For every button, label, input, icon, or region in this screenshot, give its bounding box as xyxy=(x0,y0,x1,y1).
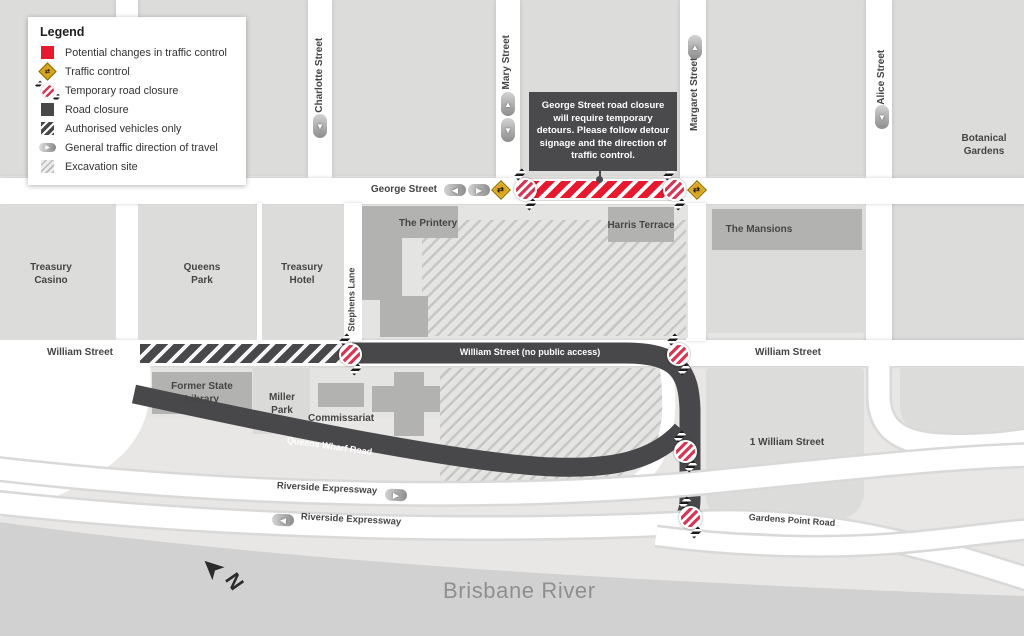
legend-item-label: Potential changes in traffic control xyxy=(65,47,227,59)
william-street-label-west: William Street xyxy=(40,347,120,360)
treasury-hotel-label: Treasury Hotel xyxy=(272,262,332,287)
arrow-down-icon: ▼ xyxy=(504,126,512,135)
legend-item-traffic-control: ⇄ Traffic control xyxy=(38,62,236,81)
charlotte-direction-pill: ▼ xyxy=(313,114,327,138)
authorised-vehicles-icon xyxy=(38,122,57,135)
harris-terrace-label: Harris Terrace xyxy=(605,220,677,233)
arrow-up-icon: ▲ xyxy=(691,43,699,52)
charlotte-street-label: Charlotte Street xyxy=(314,35,327,115)
legend-item-traffic-direction: ▶ General traffic direction of travel xyxy=(38,138,236,157)
excavation-site-icon xyxy=(38,160,57,173)
legend-item-label: Temporary road closure xyxy=(65,85,178,97)
mary-direction-pill-down: ▼ xyxy=(501,118,515,142)
margaret-street-label: Margaret Street xyxy=(689,54,702,134)
william-street-closed-label: William Street (no public access) xyxy=(430,347,630,358)
arrow-up-icon: ▲ xyxy=(504,100,512,109)
riverside-direction-pill-west: ◀ xyxy=(272,513,295,526)
road-closure-sign-george-west xyxy=(514,178,537,201)
mary-street-label: Mary Street xyxy=(501,22,514,102)
arrow-left-icon: ◀ xyxy=(280,515,287,524)
traffic-controller-glyph: ⇄ xyxy=(497,185,504,194)
road-closure-sign-margaret-south xyxy=(674,440,697,463)
traffic-controller-glyph: ⇄ xyxy=(693,185,700,194)
one-william-street-label: 1 William Street xyxy=(737,437,837,450)
george-street-closure-callout: George Street road closure will require … xyxy=(529,92,677,171)
george-direction-pill-left: ◀ xyxy=(444,184,466,196)
queens-park-label: Queens Park xyxy=(174,262,230,287)
alice-direction-pill: ▼ xyxy=(875,105,889,129)
legend-item-temporary-closure: Temporary road closure xyxy=(38,81,236,100)
botanical-gardens-label: Botanical Gardens xyxy=(950,133,1018,158)
former-state-library-label: Former State Library xyxy=(160,381,244,406)
miller-park-label: Miller Park xyxy=(262,392,302,417)
traffic-control-icon: ⇄ xyxy=(38,65,57,78)
road-closure-icon xyxy=(38,103,57,116)
traffic-control-map: ⇄ ⇄ ▼ ▲ ▼ ▲ ▼ ◀ ▶ ▶ ◀ George Street Char… xyxy=(0,0,1024,636)
brisbane-river-label: Brisbane River xyxy=(443,578,596,604)
legend-item-authorised-vehicles: Authorised vehicles only xyxy=(38,119,236,138)
road-closure-sign-william-west xyxy=(339,343,362,366)
legend-item-potential-changes: Potential changes in traffic control xyxy=(38,43,236,62)
arrow-down-icon: ▼ xyxy=(878,113,886,122)
mary-direction-pill-up: ▲ xyxy=(501,92,515,116)
legend-title: Legend xyxy=(40,25,236,39)
riverside-direction-pill-east: ▶ xyxy=(385,488,408,501)
william-street-label-east: William Street xyxy=(748,347,828,360)
printery-label: The Printery xyxy=(388,218,468,231)
temporary-road-closure-icon xyxy=(38,84,57,98)
arrow-left-icon: ◀ xyxy=(452,186,458,195)
legend-item-label: General traffic direction of travel xyxy=(65,142,218,154)
legend-item-road-closure: Road closure xyxy=(38,100,236,119)
treasury-casino-label: Treasury Casino xyxy=(21,262,81,287)
legend-item-label: Authorised vehicles only xyxy=(65,123,181,135)
legend-panel: Legend Potential changes in traffic cont… xyxy=(28,17,246,185)
callout-connector-dot xyxy=(596,176,603,183)
road-closure-sign-william-east xyxy=(667,343,690,366)
mansions-label: The Mansions xyxy=(721,224,797,237)
north-arrow: ➤ N xyxy=(200,550,264,610)
legend-item-label: Road closure xyxy=(65,104,129,116)
arrow-right-icon: ▶ xyxy=(393,490,400,499)
arrow-down-icon: ▼ xyxy=(316,122,324,131)
stephens-lane-label: Stephens Lane xyxy=(346,260,357,340)
traffic-control-sign-east: ⇄ xyxy=(688,181,705,198)
potential-changes-icon xyxy=(38,46,57,59)
road-closure-sign-gardens-point xyxy=(679,506,702,529)
authorised-vehicles-band xyxy=(140,344,352,363)
george-street-label: George Street xyxy=(355,184,437,197)
margaret-direction-pill: ▲ xyxy=(688,35,702,59)
traffic-direction-icon: ▶ xyxy=(38,143,57,152)
legend-item-excavation: Excavation site xyxy=(38,157,236,176)
legend-item-label: Traffic control xyxy=(65,66,130,78)
road-closure-sign-george-east xyxy=(663,178,686,201)
george-direction-pill-right: ▶ xyxy=(468,184,490,196)
commissariat-label: Commissariat xyxy=(308,413,372,426)
legend-item-label: Excavation site xyxy=(65,161,138,173)
arrow-right-icon: ▶ xyxy=(476,186,482,195)
traffic-control-sign-west: ⇄ xyxy=(492,181,509,198)
